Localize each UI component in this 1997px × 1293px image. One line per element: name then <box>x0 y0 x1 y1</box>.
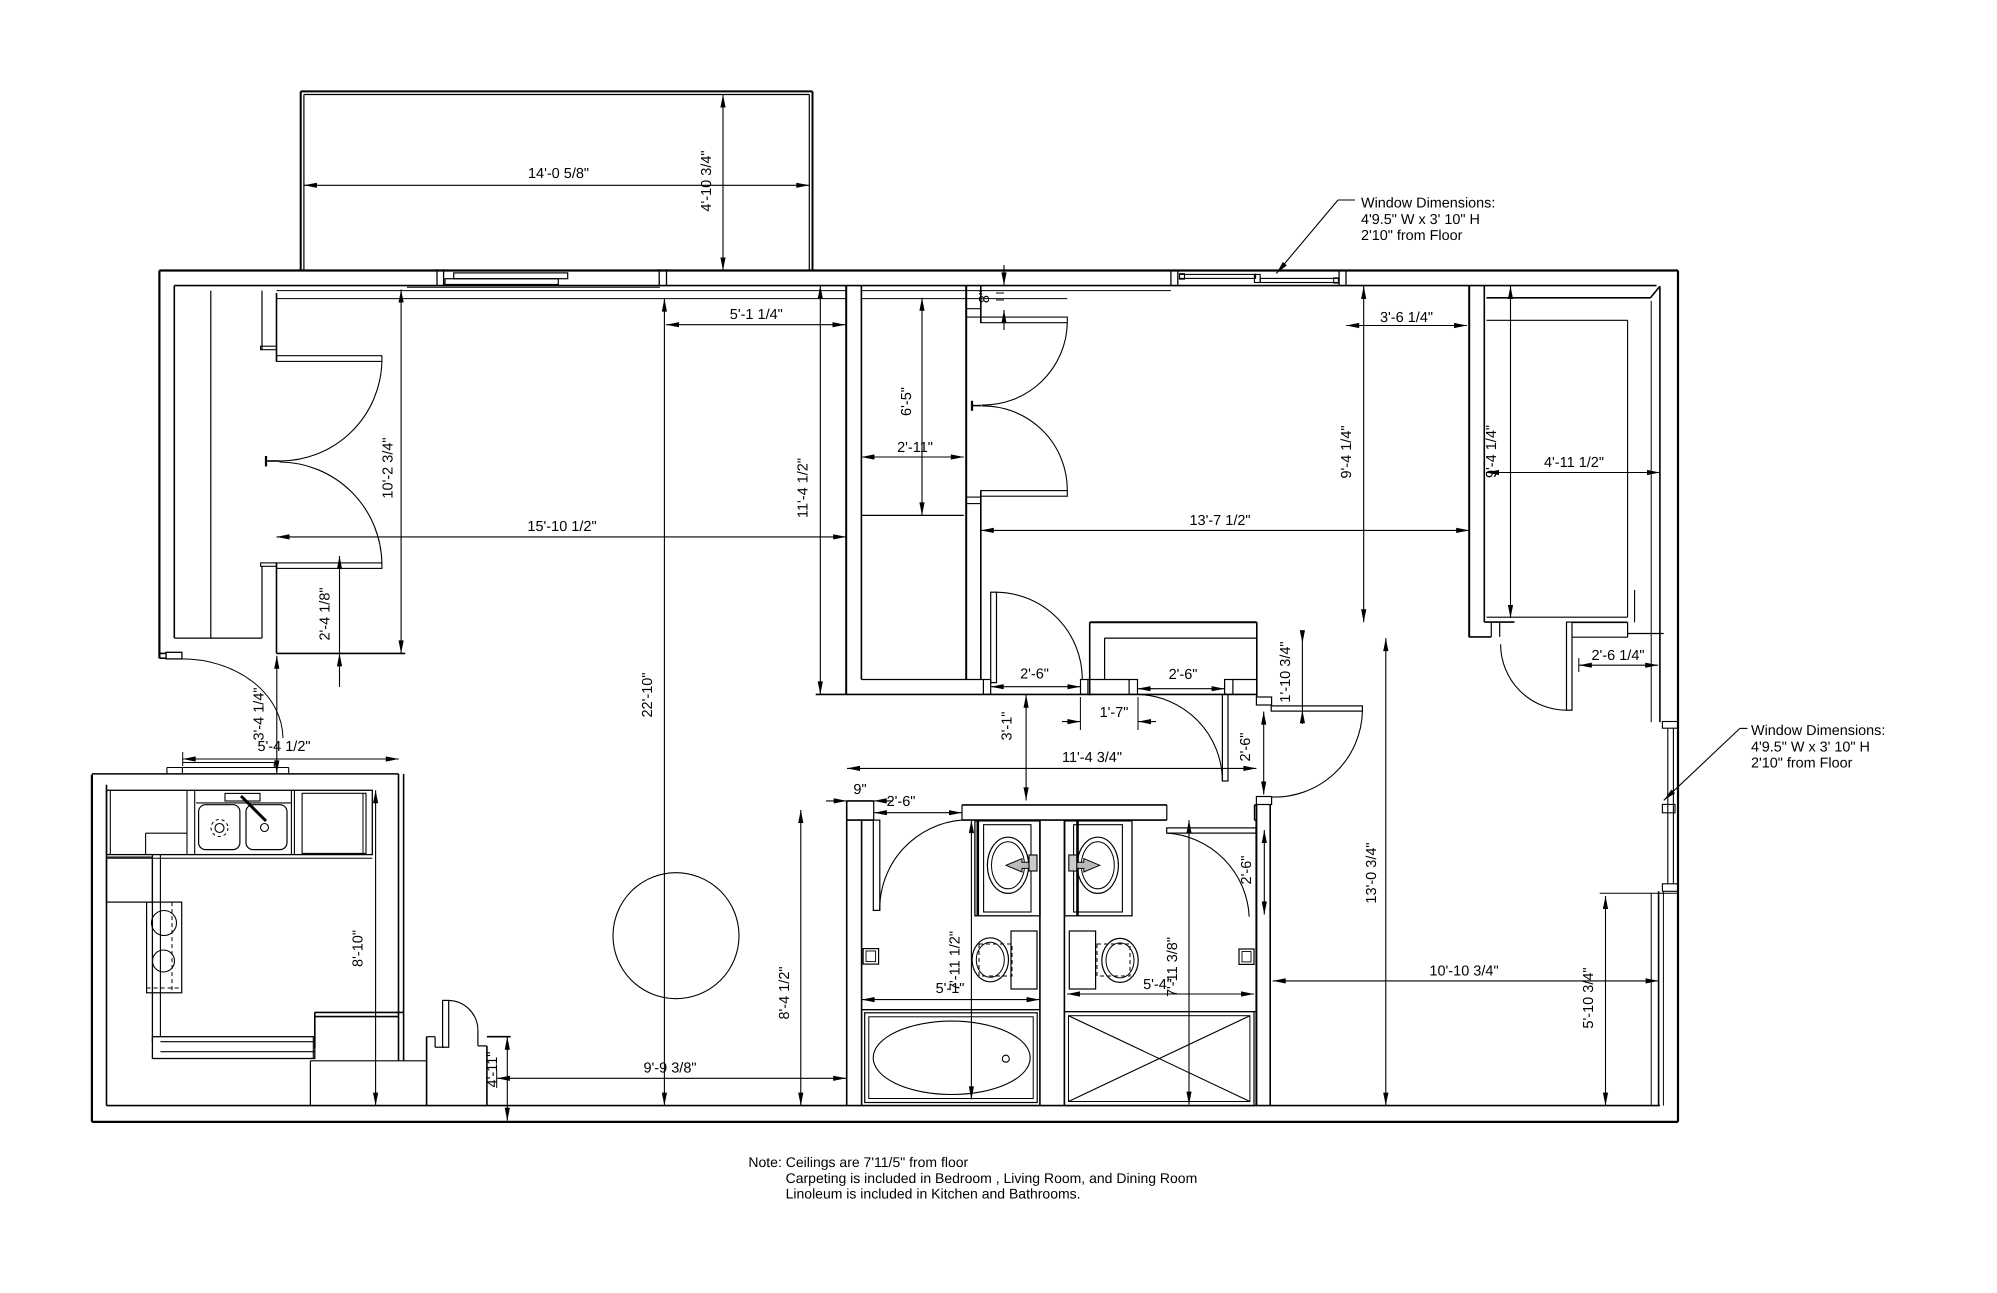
svg-text:Linoleum is included in Kitche: Linoleum is included in Kitchen and Bath… <box>786 1186 1081 1202</box>
svg-text:4'9.5" W x 3' 10" H: 4'9.5" W x 3' 10" H <box>1361 212 1480 228</box>
svg-text:Carpeting is included in Bedro: Carpeting is included in Bedroom , Livin… <box>786 1170 1198 1186</box>
svg-text:11'-4 1/2": 11'-4 1/2" <box>796 458 812 518</box>
svg-text:2'-6": 2'-6" <box>1020 667 1049 683</box>
svg-text:5'-10 3/4": 5'-10 3/4" <box>1581 967 1597 1028</box>
svg-text:2'-6 1/4": 2'-6 1/4" <box>1591 648 1644 664</box>
svg-text:14'-0 5/8": 14'-0 5/8" <box>528 166 589 182</box>
svg-text:2'-11": 2'-11" <box>897 440 933 456</box>
svg-text:8": 8" <box>977 290 993 303</box>
svg-text:2'-6": 2'-6" <box>887 794 916 810</box>
svg-text:15'-10 1/2": 15'-10 1/2" <box>527 519 596 535</box>
svg-text:2'-6": 2'-6" <box>1169 667 1198 683</box>
svg-text:Window Dimensions:: Window Dimensions: <box>1751 723 1885 739</box>
svg-text:3'-4 1/4": 3'-4 1/4" <box>252 687 268 740</box>
svg-text:3'-6 1/4": 3'-6 1/4" <box>1380 310 1433 326</box>
svg-text:4'9.5" W x 3' 10" H: 4'9.5" W x 3' 10" H <box>1751 740 1870 756</box>
svg-text:2'-4 1/8": 2'-4 1/8" <box>318 587 334 640</box>
svg-text:2'10" from Floor: 2'10" from Floor <box>1361 228 1463 244</box>
svg-text:8'-4 1/2": 8'-4 1/2" <box>777 966 793 1019</box>
svg-text:2'-6": 2'-6" <box>1238 733 1254 762</box>
svg-text:3'-1": 3'-1" <box>1000 712 1016 741</box>
svg-text:13'-7 1/2": 13'-7 1/2" <box>1189 513 1250 529</box>
svg-text:10'-2 3/4": 10'-2 3/4" <box>381 437 397 498</box>
svg-text:4'-10 3/4": 4'-10 3/4" <box>699 150 715 211</box>
svg-text:22'-10": 22'-10" <box>640 672 656 717</box>
svg-text:Window Dimensions:: Window Dimensions: <box>1361 196 1495 212</box>
svg-text:1'-7": 1'-7" <box>1100 705 1129 721</box>
svg-text:4'-11 1/2": 4'-11 1/2" <box>1544 455 1604 471</box>
svg-text:5'-1": 5'-1" <box>936 981 965 997</box>
svg-text:9'-9 3/8": 9'-9 3/8" <box>643 1061 696 1077</box>
svg-text:Note: Ceilings are 7'11/5" fro: Note: Ceilings are 7'11/5" from floor <box>748 1154 968 1170</box>
svg-text:11'-4 3/4": 11'-4 3/4" <box>1062 750 1122 766</box>
svg-text:5'-4": 5'-4" <box>1143 977 1172 993</box>
svg-text:13'-0 3/4": 13'-0 3/4" <box>1364 842 1380 903</box>
svg-text:2'10" from Floor: 2'10" from Floor <box>1751 756 1853 772</box>
svg-text:2'-6": 2'-6" <box>1239 856 1255 885</box>
svg-text:9'-4 1/4": 9'-4 1/4" <box>1484 425 1500 478</box>
svg-text:5'-4 1/2": 5'-4 1/2" <box>257 739 310 755</box>
svg-text:6'-5": 6'-5" <box>899 387 915 416</box>
svg-text:1'-10 3/4": 1'-10 3/4" <box>1278 641 1294 702</box>
svg-text:9'-4 1/4": 9'-4 1/4" <box>1339 425 1355 478</box>
svg-text:10'-10 3/4": 10'-10 3/4" <box>1429 964 1498 980</box>
svg-text:9": 9" <box>853 782 866 798</box>
svg-text:5'-1 1/4": 5'-1 1/4" <box>730 307 783 323</box>
svg-text:4'-11": 4'-11" <box>485 1052 501 1088</box>
svg-text:8'-10": 8'-10" <box>351 930 367 967</box>
